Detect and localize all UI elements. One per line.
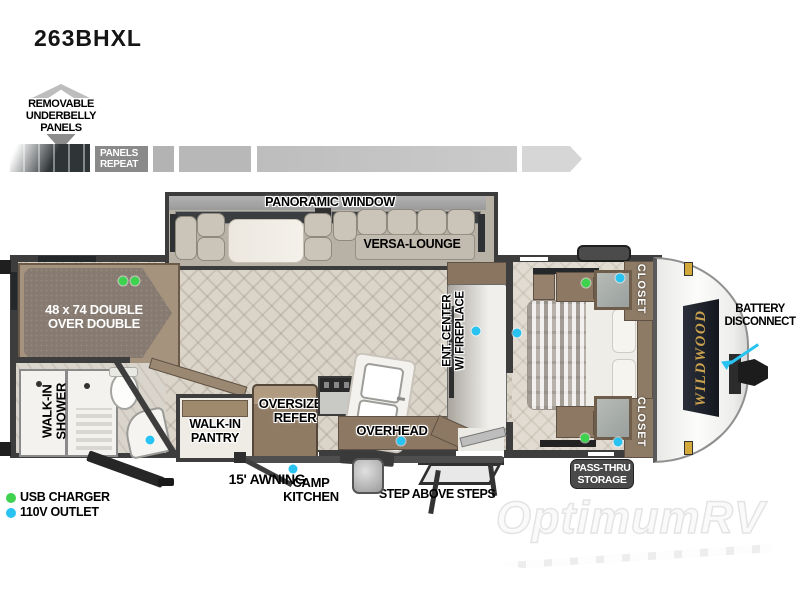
shower-floor-ridges: [76, 408, 112, 450]
bedroom-wall-lower: [506, 422, 513, 454]
legend-outlet-swatch: [6, 508, 16, 518]
bed: [527, 300, 639, 410]
usb-marker-4: [581, 434, 590, 443]
underbelly-label: REMOVABLE UNDERBELLY PANELS: [10, 98, 112, 134]
cap-hinge-top-icon: [684, 262, 693, 276]
bumper-tab-bottom: [0, 442, 11, 456]
legend-outlet-label: 110V OUTLET: [20, 506, 140, 520]
floorplan-diagram: 263BHXL REMOVABLE UNDERBELLY PANELS PANE…: [0, 0, 800, 600]
outlet-marker-2: [289, 465, 298, 474]
dinette-bench-left-seat: [197, 237, 225, 261]
versa-lounge-cushion-2: [357, 209, 387, 235]
wall-marker-4: [588, 452, 614, 456]
bunk-label: 48 x 74 DOUBLE OVER DOUBLE: [28, 303, 160, 332]
camp-kitchen-label: CAMP KITCHEN: [276, 476, 346, 505]
legend-usb-swatch: [6, 493, 16, 503]
versa-lounge-cushion-3: [387, 209, 417, 235]
closet-top-label: CLOSET: [635, 261, 647, 317]
shower-head-right-icon: [84, 383, 90, 389]
watermark: OptimumRV: [496, 492, 796, 582]
panel-strip-fade: [10, 144, 90, 172]
model-title: 263BHXL: [34, 26, 142, 51]
outlet-marker-4: [472, 327, 481, 336]
watermark-road: [500, 544, 772, 568]
step-above-steps-label: STEP ABOVE STEPS: [378, 488, 496, 502]
outlet-marker-1: [146, 436, 155, 445]
jack-foot: [158, 478, 174, 486]
usb-marker-1: [119, 277, 128, 286]
rear-window: [11, 272, 17, 310]
camp-kitchen-tank: [352, 458, 384, 494]
slideout-side-window-right: [478, 214, 485, 252]
versa-lounge-cushion-5: [447, 209, 475, 235]
usb-marker-2: [131, 277, 140, 286]
ent-center-label: ENT. CENTER W/ FIREPLACE: [441, 276, 466, 386]
bed-plaid-blanket: [528, 301, 586, 409]
panel-seg-2: [179, 146, 251, 172]
versa-lounge-label: VERSA-LOUNGE: [348, 238, 476, 252]
panoramic-window-label: PANORAMIC WINDOW: [225, 196, 435, 210]
dinette-corner-cushion: [175, 216, 197, 260]
panels-repeat-box: PANELS REPEAT: [95, 146, 148, 172]
dinette-bench-right-back: [304, 213, 332, 237]
versa-lounge-cushion-4: [417, 209, 447, 235]
dinette-bench-left-back: [197, 213, 225, 237]
battery-disconnect-label: BATTERY DISCONNECT: [720, 303, 800, 328]
closet-top-mirror: [594, 270, 632, 310]
top-left-window: [38, 256, 96, 262]
awning-end-cap: [234, 452, 246, 463]
panel-seg-3: [257, 146, 517, 172]
dinette-bench-right-seat: [304, 237, 332, 261]
outlet-marker-3: [397, 437, 406, 446]
bedroom-nightstand: [533, 274, 555, 300]
brand-badge: WILDWOOD: [683, 299, 719, 417]
dinette-table: [228, 219, 304, 263]
outlet-marker-6: [616, 274, 625, 283]
wall-marker-1: [520, 257, 548, 261]
roof-grab-handle: [577, 245, 631, 262]
watermark-text: OptimumRV: [496, 492, 796, 544]
closet-bottom-label: CLOSET: [635, 394, 647, 450]
legend-usb-label: USB CHARGER: [20, 491, 140, 505]
versa-lounge-cushion-1: [333, 211, 357, 241]
outlet-marker-7: [614, 438, 623, 447]
closet-bottom-mirror: [594, 396, 632, 440]
arrow-up-icon: [32, 84, 90, 98]
outlet-marker-5: [513, 329, 522, 338]
pass-thru-label: PASS-THRU STORAGE: [571, 463, 633, 486]
walk-in-shower-label: WALK-IN SHOWER: [41, 365, 70, 457]
battery-disconnect-switch: [738, 359, 768, 386]
panels-repeat-label: PANELS REPEAT: [100, 149, 138, 170]
bumper-tab-top: [0, 260, 11, 274]
panel-seg-1: [153, 146, 174, 172]
cap-hinge-bottom-icon: [684, 441, 693, 455]
brand-logo-text: WILDWOOD: [693, 310, 710, 407]
overhead-label: OVERHEAD: [342, 424, 442, 438]
panel-strip: PANELS REPEAT: [0, 142, 600, 172]
bedroom-wall-upper: [506, 261, 513, 373]
usb-marker-3: [582, 279, 591, 288]
pass-thru-box: PASS-THRU STORAGE: [570, 459, 634, 489]
panel-seg-arrow: [522, 146, 582, 172]
pantry-shelf: [182, 400, 248, 417]
